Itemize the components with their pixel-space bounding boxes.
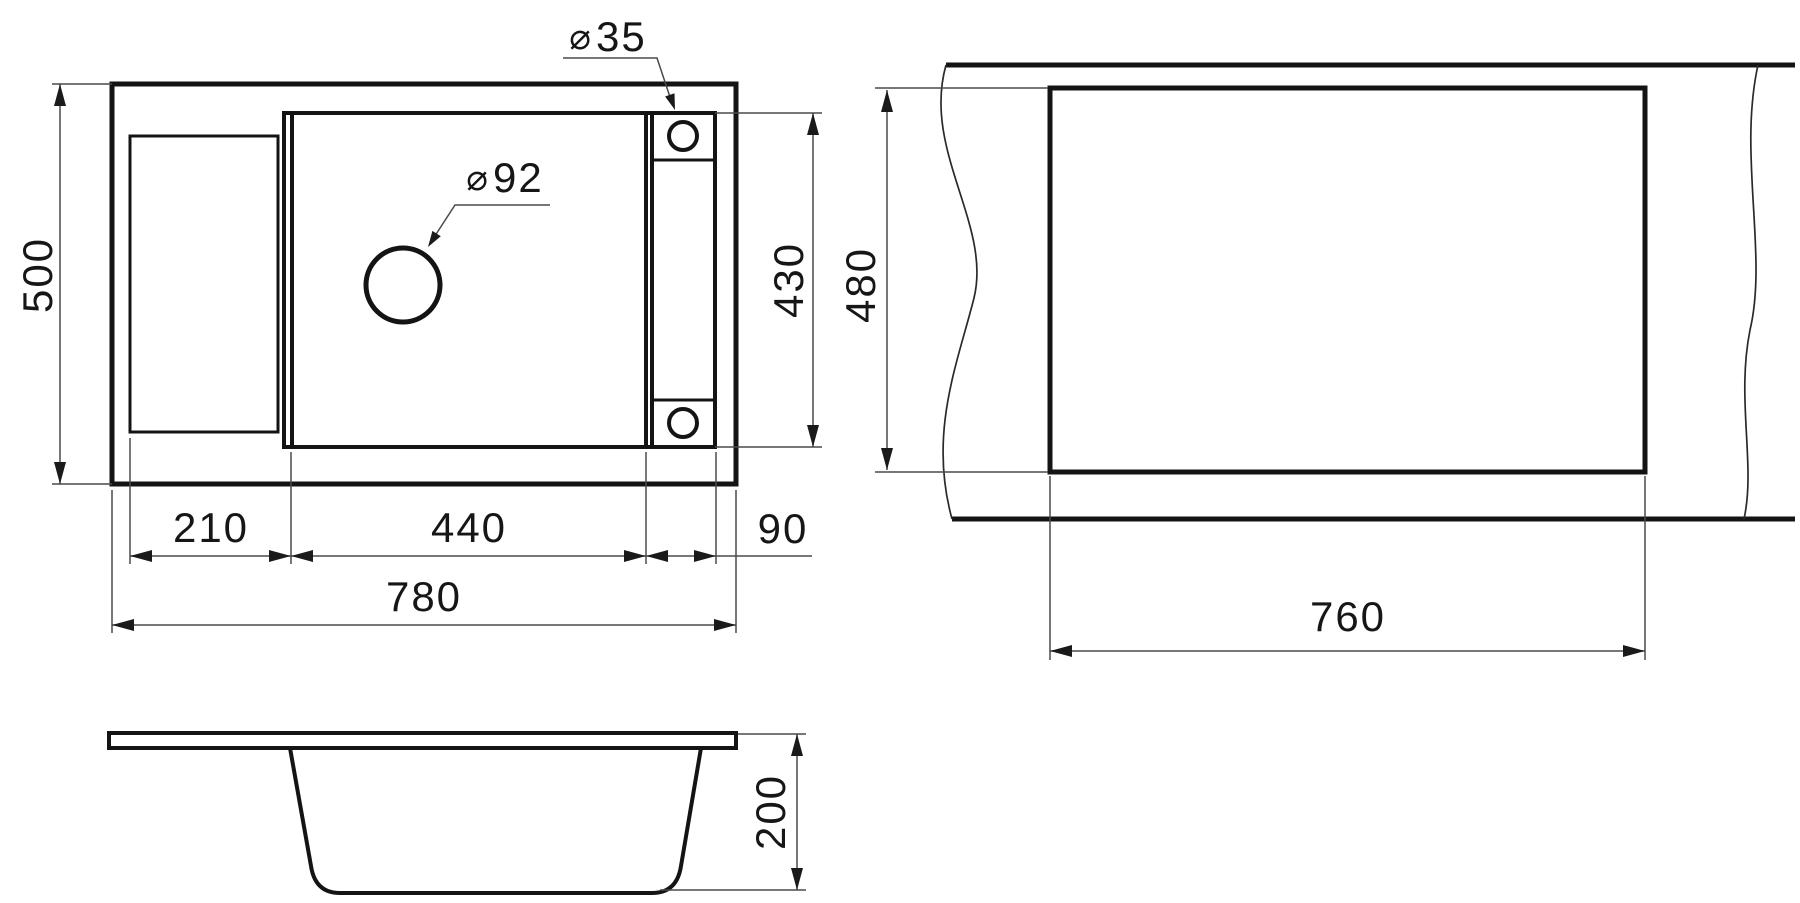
cutout-view (875, 65, 1795, 660)
dim-drainer-width: 210 (173, 507, 249, 549)
sink-outer-outline (112, 84, 736, 484)
dim-overall-depth: 500 (17, 237, 59, 313)
tap-hole-bottom (669, 409, 697, 437)
leader-drain-hole (428, 205, 550, 247)
section-view (109, 733, 806, 893)
drainboard-outline (130, 136, 278, 432)
dim-bowl-height: 200 (750, 774, 792, 850)
diameter-symbol: ⌀ (569, 16, 591, 57)
countertop-cutout-outline (1050, 88, 1645, 472)
tap-hole-value: 35 (596, 13, 647, 60)
break-line-left (941, 65, 977, 519)
label-tap-hole-diameter: ⌀35 (569, 16, 646, 58)
break-line-right (1744, 65, 1758, 519)
drawing-linework (0, 0, 1800, 903)
sink-rim-profile (109, 733, 736, 748)
sink-technical-drawing: 500 430 210 440 90 780 ⌀92 ⌀35 480 760 2… (0, 0, 1800, 903)
diameter-symbol: ⌀ (466, 157, 488, 198)
label-drain-hole-diameter: ⌀92 (466, 157, 543, 199)
dim-480-lines (875, 88, 1048, 472)
dim-overall-width: 780 (386, 576, 462, 618)
bowl-profile (290, 748, 701, 893)
dim-bowl-inner-depth: 430 (768, 242, 810, 318)
dim-tap-deck-width: 90 (758, 508, 809, 550)
tap-hole-top (669, 122, 697, 150)
drain-hole (366, 248, 440, 322)
dim-500-lines (52, 84, 112, 484)
drain-hole-value: 92 (493, 154, 544, 201)
dim-cutout-height: 480 (840, 247, 882, 323)
dim-bowl-width: 440 (431, 507, 507, 549)
dim-cutout-width: 760 (1310, 596, 1386, 638)
